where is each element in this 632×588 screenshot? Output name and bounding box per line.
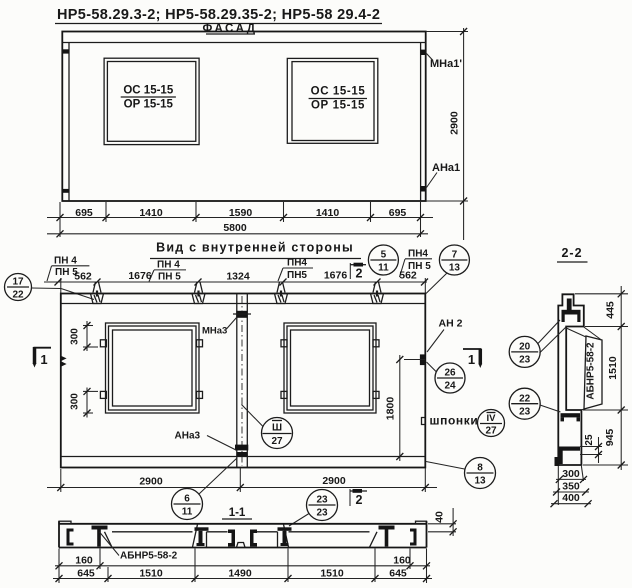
svg-text:400: 400 [562, 492, 580, 504]
svg-text:НР5-58.29.3-2; НР5-58.29.35-2: НР5-58.29.3-2; НР5-58.29.35-2; НР5-58 29… [57, 7, 380, 23]
svg-text:22: 22 [12, 290, 24, 301]
svg-text:11: 11 [378, 263, 389, 274]
svg-text:25: 25 [584, 434, 595, 446]
svg-text:22: 22 [519, 394, 531, 405]
svg-text:1: 1 [468, 352, 475, 367]
svg-text:1324: 1324 [226, 271, 250, 283]
svg-text:1590: 1590 [229, 207, 253, 219]
svg-text:2-2: 2-2 [561, 246, 582, 260]
svg-text:562: 562 [74, 271, 92, 283]
svg-text:13: 13 [474, 476, 486, 487]
svg-text:645: 645 [77, 567, 95, 579]
svg-text:8: 8 [477, 463, 483, 474]
svg-text:АБНР5-58-2: АБНР5-58-2 [586, 342, 597, 400]
svg-text:20: 20 [519, 342, 531, 353]
svg-text:1: 1 [40, 352, 47, 367]
svg-text:ОС 15-15: ОС 15-15 [311, 86, 366, 98]
svg-text:ПН4: ПН4 [408, 249, 428, 260]
svg-text:300: 300 [70, 328, 81, 345]
svg-text:1510: 1510 [320, 567, 344, 579]
svg-text:1410: 1410 [139, 207, 163, 219]
svg-text:ПН 5: ПН 5 [158, 272, 181, 283]
svg-text:МНа3: МНа3 [202, 326, 227, 337]
svg-text:2900: 2900 [449, 111, 461, 135]
svg-text:1676: 1676 [324, 270, 348, 282]
svg-text:945: 945 [604, 429, 616, 447]
svg-text:1-1: 1-1 [229, 507, 246, 519]
svg-text:АБНР5-58-2: АБНР5-58-2 [120, 551, 178, 562]
svg-text:1676: 1676 [128, 270, 152, 282]
svg-text:2: 2 [356, 493, 363, 507]
svg-text:5800: 5800 [223, 222, 247, 234]
svg-text:ОР 15-15: ОР 15-15 [124, 99, 174, 111]
svg-text:24: 24 [444, 381, 456, 392]
svg-text:IV: IV [487, 413, 497, 424]
svg-text:2: 2 [356, 267, 363, 281]
svg-text:40: 40 [434, 511, 446, 523]
svg-text:350: 350 [562, 481, 580, 493]
svg-text:23: 23 [316, 495, 328, 506]
svg-text:445: 445 [605, 301, 617, 319]
svg-text:7: 7 [452, 250, 458, 261]
svg-text:5: 5 [381, 250, 387, 261]
svg-text:Ш: Ш [272, 423, 282, 434]
svg-text:ПН 4: ПН 4 [54, 256, 77, 267]
svg-text:562: 562 [399, 270, 417, 282]
svg-text:ОС 15-15: ОС 15-15 [123, 85, 173, 97]
svg-text:11: 11 [182, 507, 193, 518]
svg-text:ПН 4: ПН 4 [157, 260, 180, 271]
svg-text:300: 300 [70, 393, 81, 410]
svg-text:1800: 1800 [385, 397, 397, 421]
svg-text:АНа1: АНа1 [432, 162, 460, 174]
svg-text:26: 26 [444, 368, 456, 379]
svg-text:МНа1': МНа1' [430, 58, 462, 70]
svg-text:645: 645 [389, 567, 407, 579]
svg-text:23: 23 [316, 508, 328, 519]
svg-text:13: 13 [449, 263, 461, 274]
svg-text:160: 160 [393, 555, 411, 567]
svg-text:27: 27 [271, 436, 283, 447]
svg-text:1490: 1490 [228, 567, 252, 579]
svg-text:160: 160 [75, 555, 93, 567]
svg-text:1410: 1410 [316, 207, 340, 219]
svg-text:2900: 2900 [322, 475, 346, 487]
svg-text:695: 695 [389, 207, 407, 219]
svg-text:695: 695 [75, 207, 93, 219]
svg-text:17: 17 [12, 277, 24, 288]
svg-text:ПН5: ПН5 [287, 270, 307, 281]
svg-text:23: 23 [519, 407, 531, 418]
svg-text:ОР 15-15: ОР 15-15 [311, 100, 365, 112]
svg-text:Вид с внутренней стороны: Вид с внутренней стороны [156, 241, 354, 255]
svg-text:300: 300 [562, 468, 580, 480]
svg-text:ПН4: ПН4 [287, 258, 307, 269]
svg-text:27: 27 [485, 426, 497, 437]
svg-text:шпонки: шпонки [430, 414, 479, 428]
svg-text:1510: 1510 [139, 567, 163, 579]
svg-text:23: 23 [519, 355, 531, 366]
svg-text:2900: 2900 [139, 476, 163, 488]
svg-text:1510: 1510 [607, 356, 619, 380]
svg-text:6: 6 [184, 494, 190, 505]
svg-text:АН 2: АН 2 [439, 318, 463, 330]
svg-text:АНа3: АНа3 [175, 431, 201, 442]
svg-text:ФАСАД: ФАСАД [203, 23, 258, 35]
